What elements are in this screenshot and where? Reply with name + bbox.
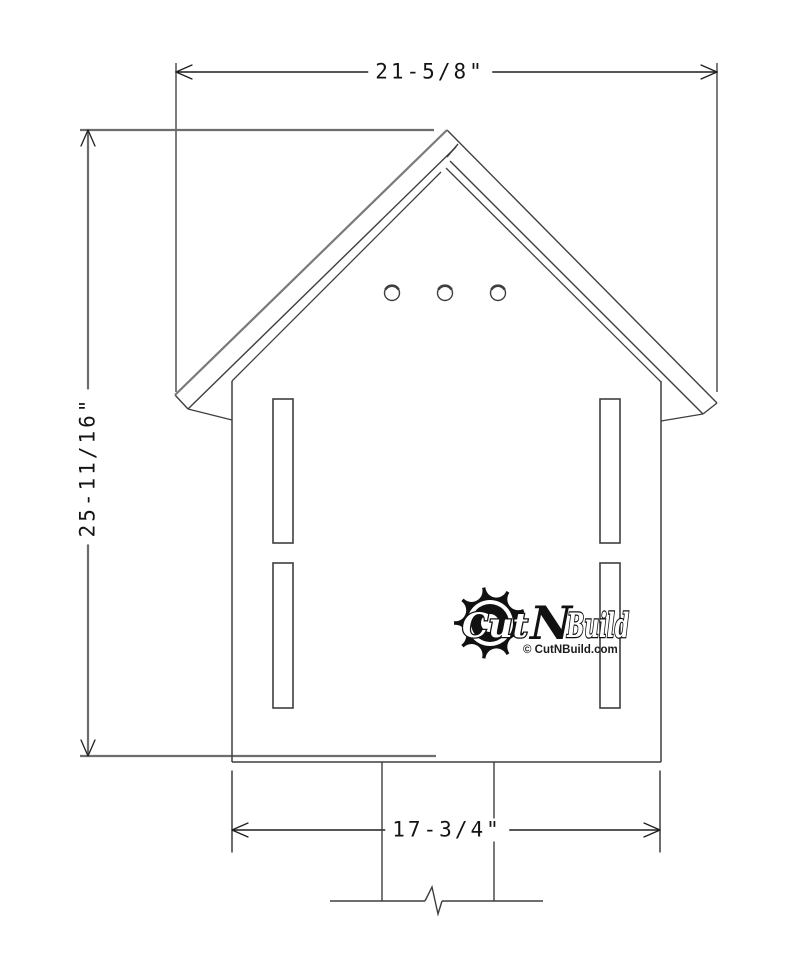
- slot-right-upper: [600, 399, 620, 543]
- roof-right-outer-edge: [447, 130, 717, 403]
- slot-left-upper: [273, 399, 293, 543]
- dimension-label-left: 25-11/16": [76, 390, 99, 545]
- extension-lines: [80, 63, 717, 901]
- dimension-label-bottom: 17-3/4": [385, 818, 509, 841]
- slot-left-lower: [273, 563, 293, 708]
- roof-left-end-cut: [175, 395, 188, 409]
- logo-word-cut: Cut: [462, 606, 528, 646]
- roof-ridge-cut: [447, 144, 458, 157]
- gable-right-edge: [446, 168, 661, 382]
- gable-left-edge: [232, 172, 441, 381]
- entry-hole-icon: [491, 286, 506, 301]
- entry-holes: [385, 286, 506, 301]
- entry-hole-icon: [385, 286, 400, 301]
- roof-left-inner-edge: [188, 147, 456, 409]
- logo-word-build: Build: [566, 606, 629, 646]
- soffit-right-line: [661, 414, 703, 421]
- dimension-label-top: 21-5/8": [368, 60, 492, 83]
- entry-hole-icon: [438, 286, 453, 301]
- roof-left-outer-edge: [175, 130, 447, 395]
- logo-subtitle: © CutNBuild.com: [523, 644, 618, 656]
- roof-right-end-cut: [703, 403, 717, 414]
- break-symbol-icon: [425, 887, 442, 914]
- house-outline: [175, 130, 717, 914]
- roof-right-inner-edge: [450, 161, 703, 414]
- soffit-left-line: [188, 409, 232, 420]
- drawing-stage: Cut N Build © CutNBuild.com 21-5/8" 25-1…: [0, 0, 812, 964]
